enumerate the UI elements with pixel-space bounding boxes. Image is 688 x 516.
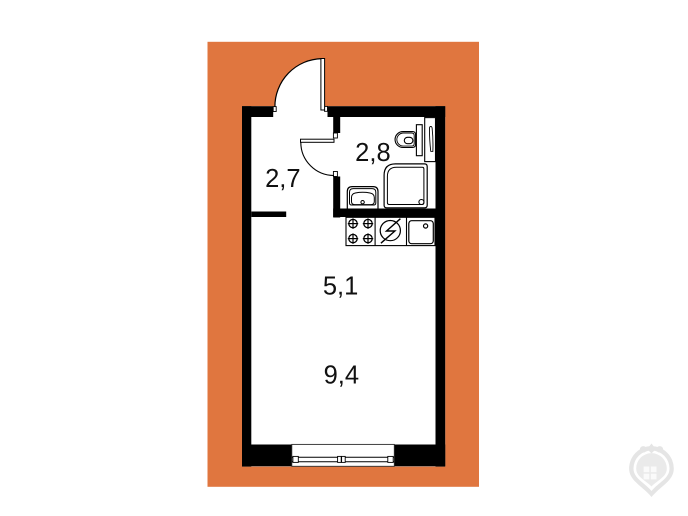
svg-text:2,8: 2,8 — [355, 139, 390, 167]
svg-text:5,1: 5,1 — [323, 272, 358, 300]
svg-text:2,7: 2,7 — [265, 165, 300, 193]
svg-text:9,4: 9,4 — [324, 362, 359, 390]
